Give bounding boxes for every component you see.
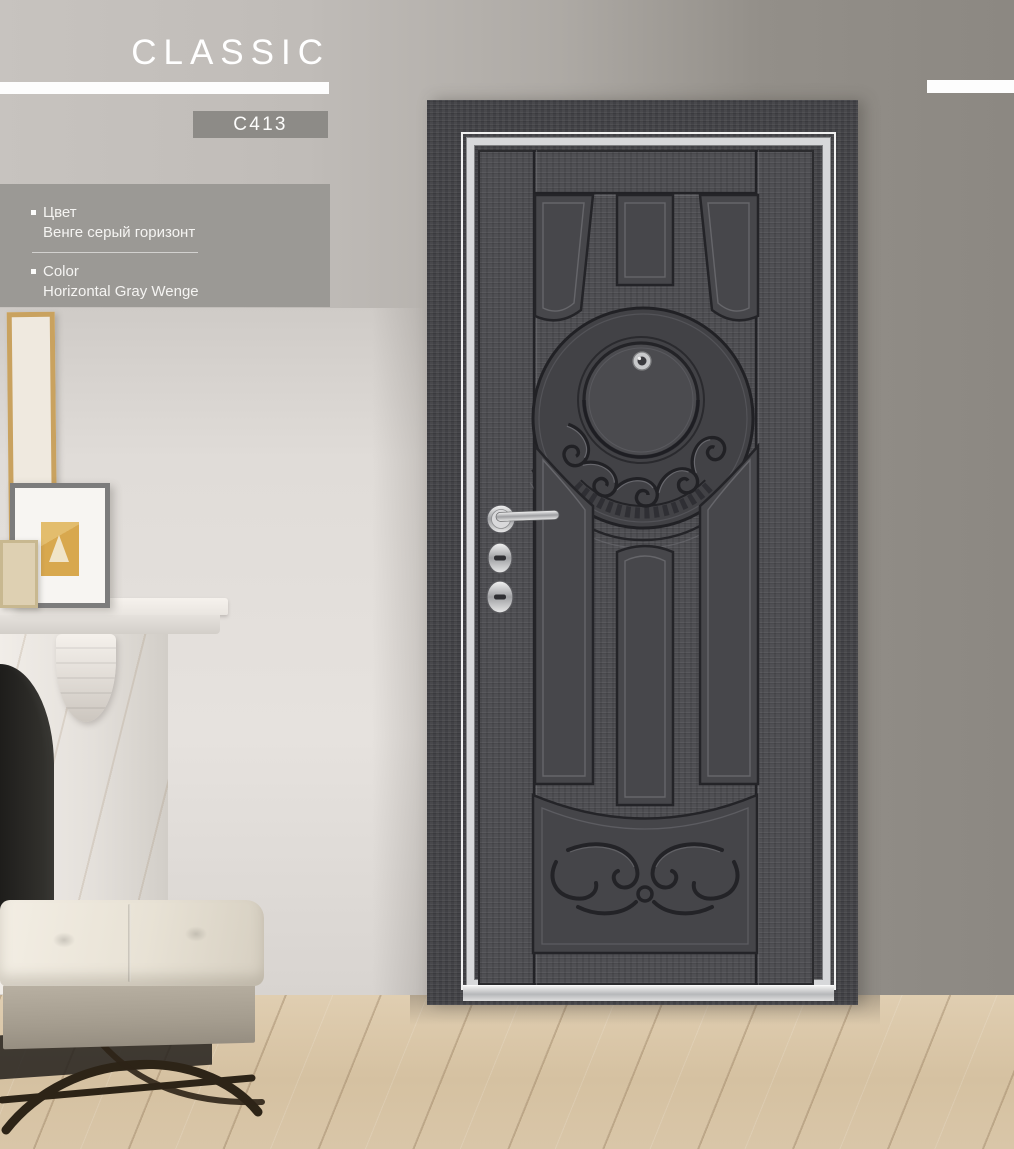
catalog-page: CLASSIC C413 Цвет Венге серый горизонт C…: [0, 0, 1014, 1149]
bullet-icon: [31, 210, 36, 215]
spec-row-ru: Цвет Венге серый горизонт: [0, 203, 330, 243]
cushion-seam: [128, 904, 131, 982]
bench-legs: [0, 1040, 270, 1136]
lock-cylinder-lower: [487, 581, 513, 613]
spec-value-en: Horizontal Gray Wenge: [43, 282, 330, 302]
door-panel-carvings: [478, 150, 814, 985]
entrance-door: [427, 100, 858, 1005]
lock-cylinder-upper: [488, 543, 512, 573]
color-spec-box: Цвет Венге серый горизонт Color Horizont…: [0, 184, 330, 307]
header-bar-left: [0, 82, 329, 94]
spec-divider: [32, 252, 198, 253]
spec-label-ru: Цвет: [43, 203, 330, 223]
door-sill: [463, 985, 834, 1001]
bench-cushion: [0, 900, 264, 986]
page-title: CLASSIC: [0, 33, 330, 73]
bullet-icon: [31, 269, 36, 274]
spec-label-en: Color: [43, 262, 330, 282]
beige-picture-frame: [0, 540, 38, 608]
upholstered-bench: [0, 900, 275, 1140]
header-bar-right: [927, 80, 1014, 93]
model-code-badge: C413: [193, 111, 328, 138]
door-leaf: [478, 150, 814, 985]
peephole-icon: [633, 352, 651, 370]
framed-artwork: [41, 522, 79, 576]
mantel-front: [0, 615, 220, 634]
spec-value-ru: Венге серый горизонт: [43, 223, 330, 243]
wall-shadow: [372, 308, 430, 998]
spec-row-en: Color Horizontal Gray Wenge: [0, 262, 330, 302]
bench-base: [3, 979, 255, 1050]
